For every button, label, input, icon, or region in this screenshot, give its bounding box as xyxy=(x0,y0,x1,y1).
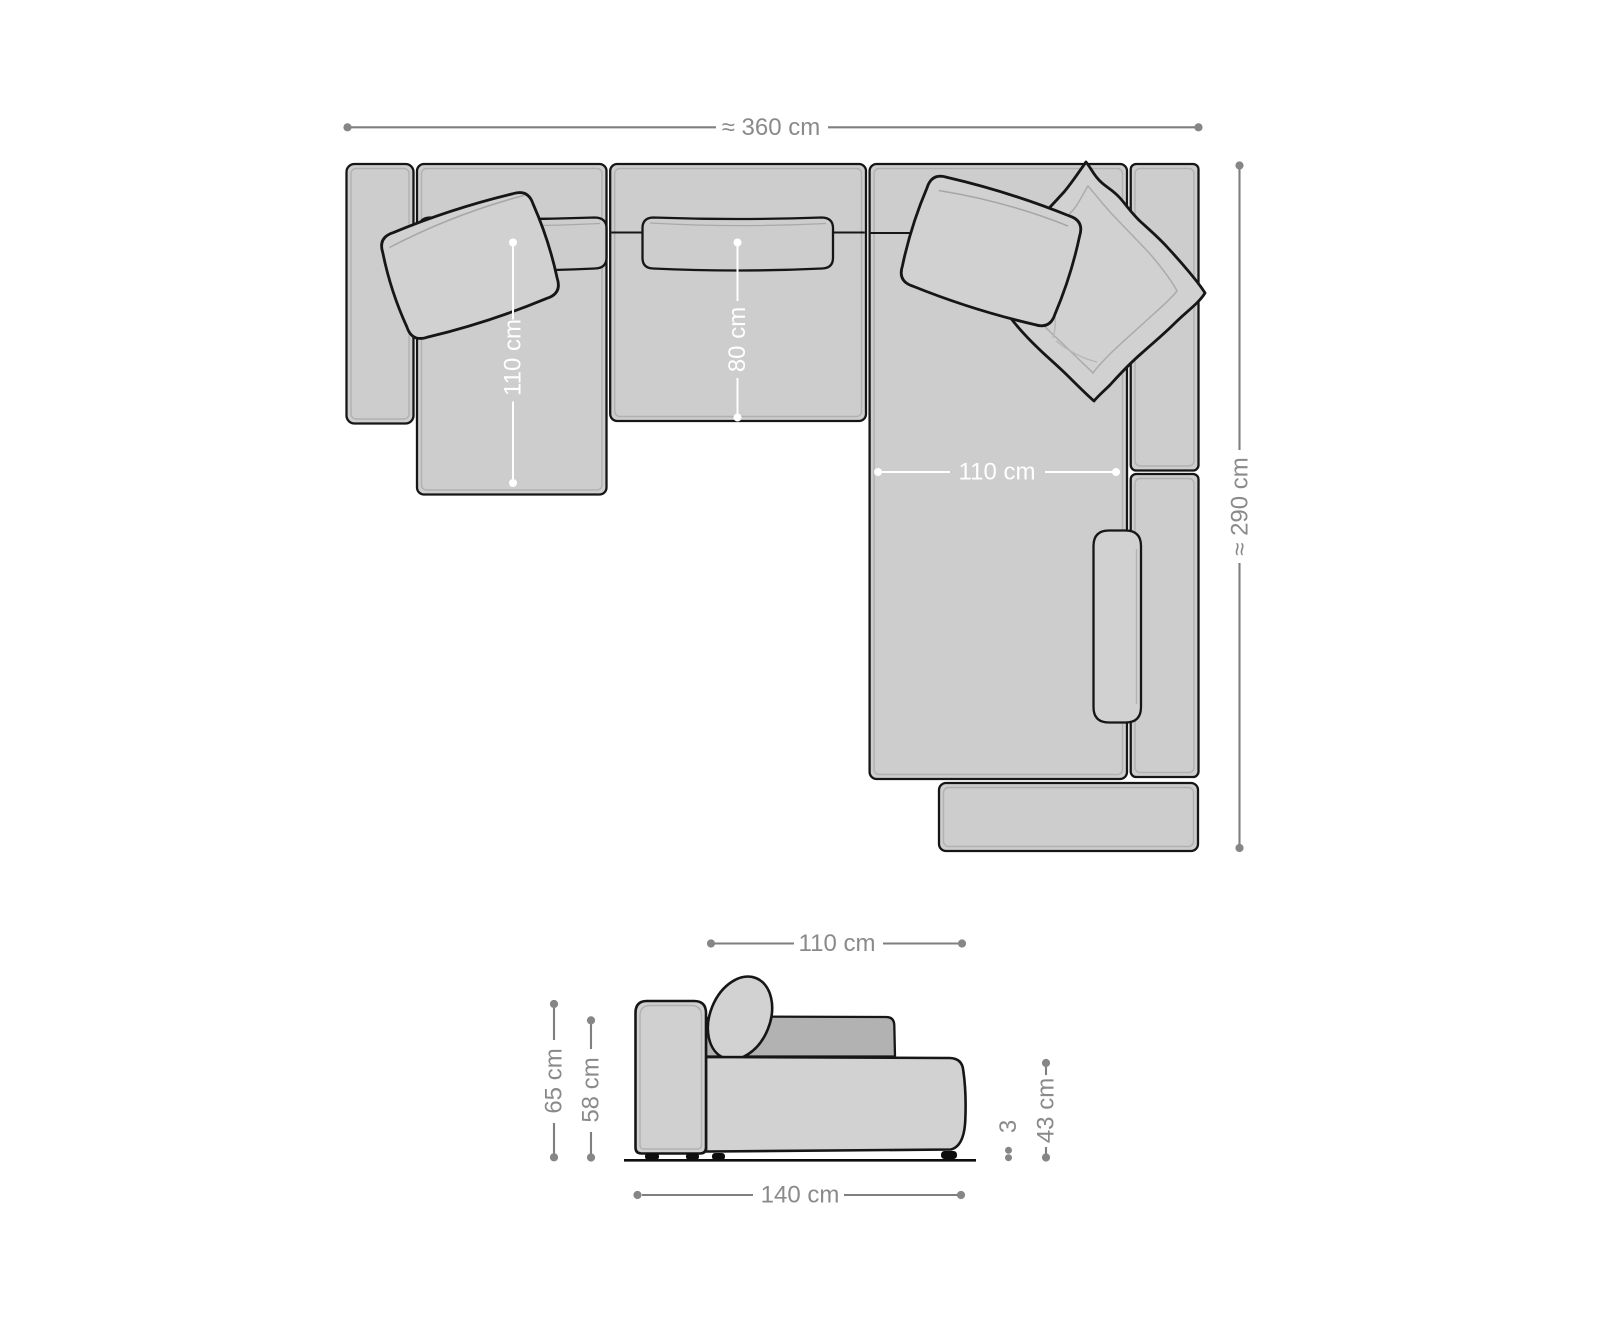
svg-text:140 cm: 140 cm xyxy=(761,1182,840,1209)
svg-text:43 cm: 43 cm xyxy=(1033,1078,1060,1143)
svg-text:58 cm: 58 cm xyxy=(578,1057,605,1122)
svg-text:110 cm: 110 cm xyxy=(959,459,1036,486)
svg-text:3: 3 xyxy=(995,1120,1022,1133)
svg-text:65 cm: 65 cm xyxy=(541,1048,568,1113)
svg-text:110 cm: 110 cm xyxy=(799,930,876,957)
svg-text:80 cm: 80 cm xyxy=(724,307,751,372)
svg-text:≈ 290 cm: ≈ 290 cm xyxy=(1227,457,1254,556)
svg-text:110 cm: 110 cm xyxy=(500,319,527,396)
svg-text:≈ 360 cm: ≈ 360 cm xyxy=(722,114,821,141)
